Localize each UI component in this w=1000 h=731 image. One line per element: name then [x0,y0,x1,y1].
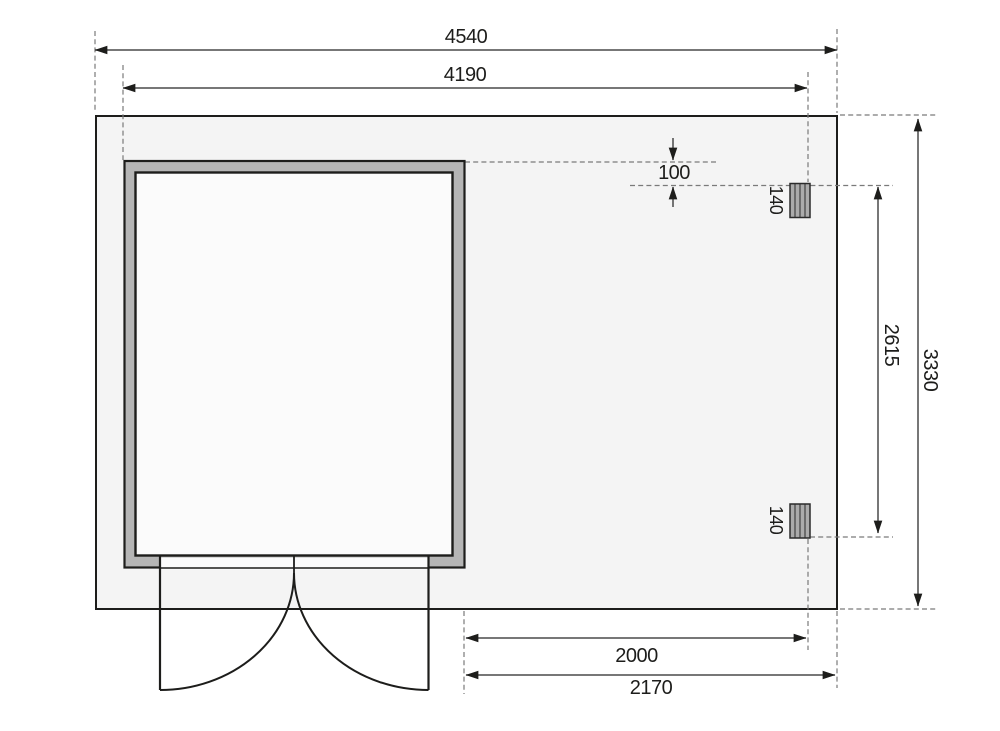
post-bottom [790,504,810,538]
shed-structure [125,161,465,570]
post-top [790,184,810,218]
dim-annex-width-label: 2000 [466,646,807,666]
shed-interior [136,173,453,556]
dim-post-top-label: 140 [767,186,785,215]
dim-post-span-label: 2615 [881,324,901,367]
dim-overall-width-label: 4540 [95,27,837,47]
dim-post-bottom-label: 140 [767,506,785,535]
dim-annex-overall-label: 2170 [466,678,836,698]
floor-plan-drawing [0,0,1000,731]
floor-plan-canvas: 4540 4190 100 140 140 2615 3330 2000 217… [0,0,1000,731]
dim-overall-depth-label: 3330 [920,349,940,392]
dim-inner-width-label: 4190 [123,65,807,85]
dim-offset-label: 100 [643,163,705,183]
